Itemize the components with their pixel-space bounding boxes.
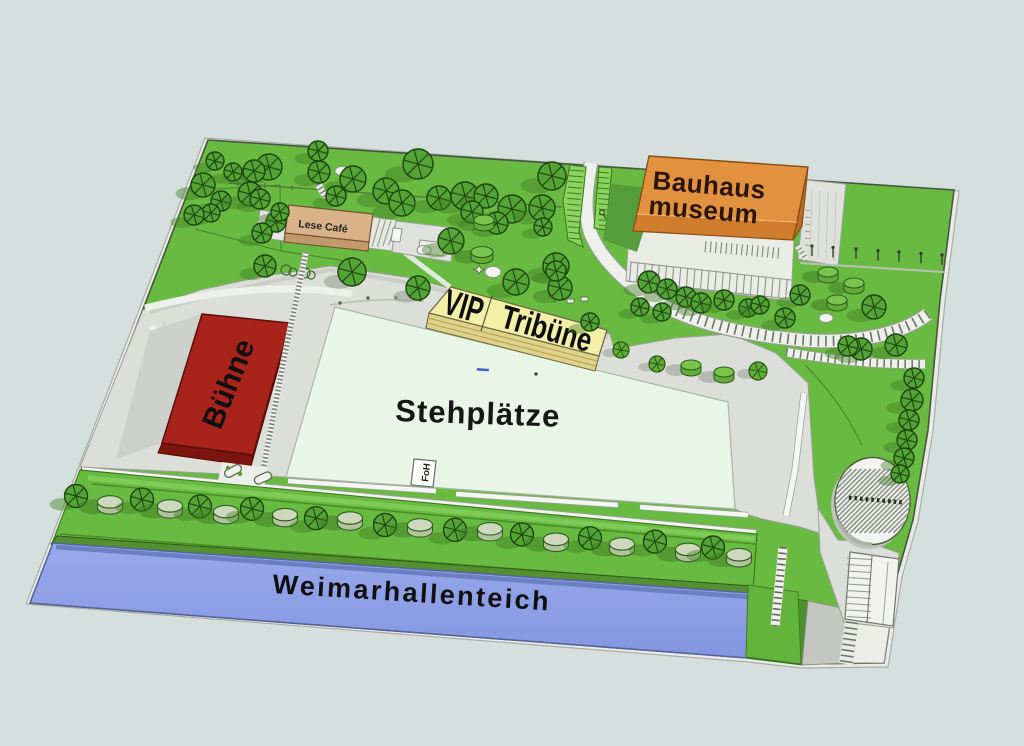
svg-text:Stehplätze: Stehplätze <box>395 393 561 434</box>
svg-text:FoH: FoH <box>420 463 433 483</box>
